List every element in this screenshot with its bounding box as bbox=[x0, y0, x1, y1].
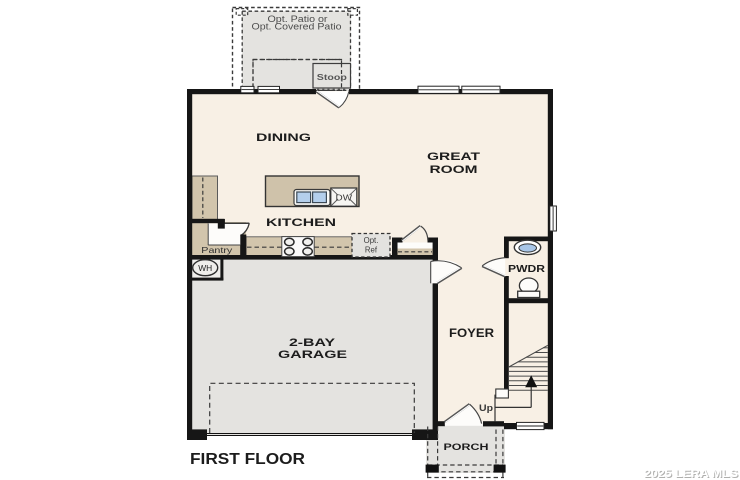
svg-text:KITCHEN: KITCHEN bbox=[266, 217, 336, 229]
svg-text:FIRST FLOOR: FIRST FLOOR bbox=[190, 451, 305, 468]
svg-text:Up: Up bbox=[479, 403, 494, 413]
svg-text:Stoop: Stoop bbox=[317, 72, 347, 82]
svg-text:Ref: Ref bbox=[365, 246, 378, 255]
svg-text:Pantry: Pantry bbox=[201, 245, 233, 255]
svg-text:ROOM: ROOM bbox=[430, 164, 478, 176]
svg-text:WH: WH bbox=[198, 263, 212, 273]
svg-text:DW: DW bbox=[336, 193, 353, 202]
svg-text:GARAGE: GARAGE bbox=[278, 349, 348, 361]
svg-text:GREAT: GREAT bbox=[427, 151, 480, 163]
svg-text:FOYER: FOYER bbox=[449, 326, 495, 340]
svg-text:2025 LERA MLS: 2025 LERA MLS bbox=[644, 468, 738, 480]
svg-text:DINING: DINING bbox=[256, 132, 311, 144]
svg-text:2-BAY: 2-BAY bbox=[289, 337, 336, 349]
svg-text:PWDR: PWDR bbox=[508, 264, 545, 275]
svg-text:PORCH: PORCH bbox=[444, 442, 489, 453]
svg-text:Opt. Covered Patio: Opt. Covered Patio bbox=[252, 21, 342, 31]
svg-text:Opt.: Opt. bbox=[364, 236, 379, 245]
